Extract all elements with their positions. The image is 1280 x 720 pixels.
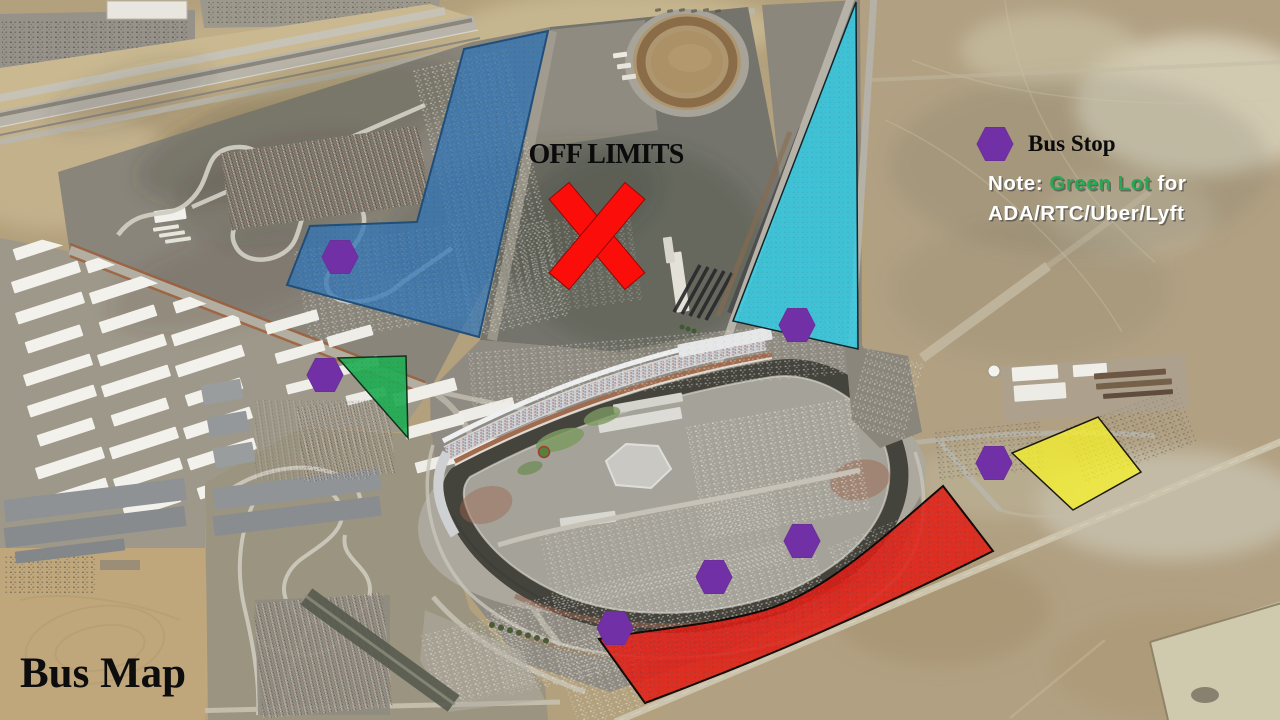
svg-text:ADA/RTC/Uber/Lyft: ADA/RTC/Uber/Lyft: [988, 202, 1185, 225]
svg-text:Bus Stop: Bus Stop: [1028, 131, 1116, 156]
svg-text:Note: Green Lot for: Note: Green Lot for: [988, 172, 1186, 195]
svg-text:OFF LIMITS: OFF LIMITS: [528, 139, 683, 170]
svg-text:Bus Map: Bus Map: [20, 650, 186, 697]
